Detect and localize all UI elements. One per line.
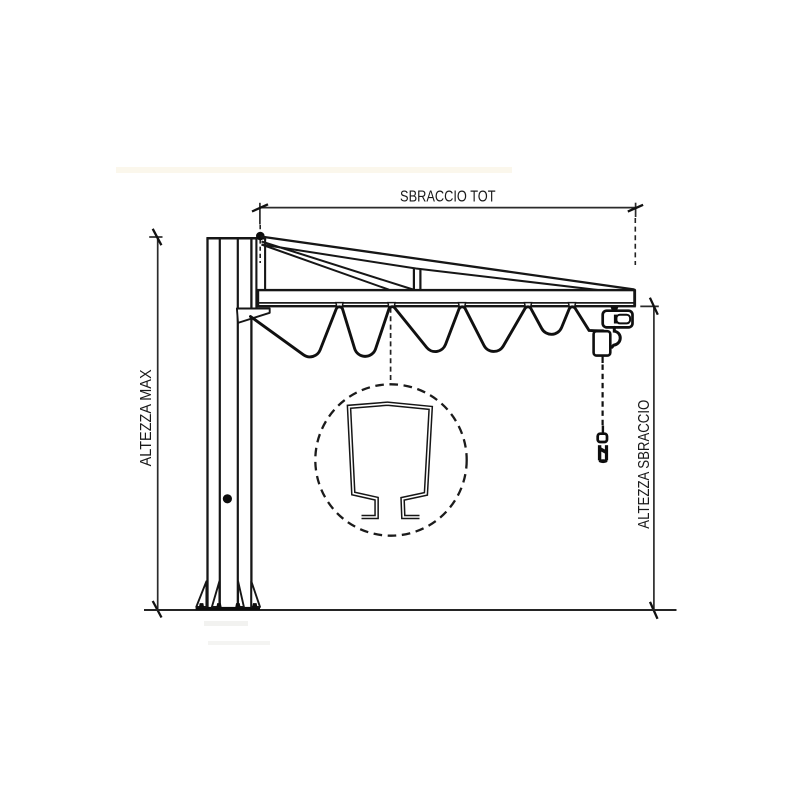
svg-text:ALTEZZA MAX: ALTEZZA MAX [138,369,155,466]
svg-text:SBRACCIO TOT: SBRACCIO TOT [400,189,496,206]
svg-text:ALTEZZA SBRACCIO: ALTEZZA SBRACCIO [636,400,653,529]
